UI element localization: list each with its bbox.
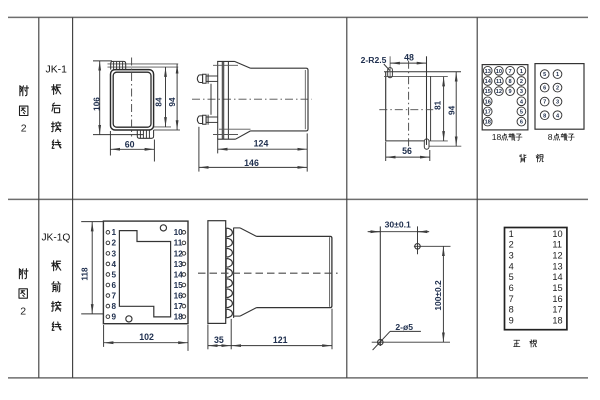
svg-text:16: 16 [552, 294, 562, 304]
svg-text:8: 8 [509, 79, 512, 85]
svg-text:3: 3 [520, 89, 523, 95]
svg-text:9: 9 [509, 316, 514, 326]
svg-text:8: 8 [509, 305, 514, 315]
svg-text:2: 2 [112, 239, 117, 248]
svg-text:2-R2.5: 2-R2.5 [361, 55, 387, 65]
svg-text:5: 5 [520, 110, 523, 116]
svg-text:100±0.2: 100±0.2 [433, 280, 443, 311]
svg-text:84: 84 [154, 97, 163, 107]
svg-text:11: 11 [496, 79, 502, 85]
svg-text:7: 7 [509, 294, 514, 304]
svg-text:94: 94 [168, 97, 177, 107]
svg-text:11: 11 [552, 240, 562, 250]
svg-text:15: 15 [552, 283, 562, 293]
svg-text:6: 6 [112, 281, 117, 290]
svg-text:8: 8 [112, 302, 117, 311]
svg-text:13: 13 [552, 261, 562, 271]
svg-text:3: 3 [509, 251, 514, 261]
svg-text:10: 10 [552, 229, 562, 239]
svg-text:18: 18 [552, 316, 562, 326]
svg-text:18: 18 [485, 120, 491, 126]
svg-text:3: 3 [112, 249, 117, 258]
svg-text:2-ø5: 2-ø5 [395, 322, 413, 332]
svg-text:10: 10 [496, 69, 502, 75]
svg-text:8: 8 [543, 113, 546, 119]
svg-text:17: 17 [552, 305, 562, 315]
svg-text:7: 7 [112, 291, 117, 300]
svg-text:1: 1 [556, 72, 559, 78]
svg-text:14: 14 [485, 79, 492, 85]
svg-text:16: 16 [485, 99, 491, 105]
svg-text:118: 118 [81, 267, 90, 281]
svg-text:1: 1 [112, 228, 117, 237]
svg-text:6: 6 [509, 283, 514, 293]
svg-text:18: 18 [492, 132, 502, 142]
svg-text:14: 14 [552, 272, 562, 282]
svg-text:12: 12 [552, 251, 562, 261]
svg-text:9: 9 [509, 89, 512, 95]
svg-text:4: 4 [509, 261, 514, 271]
svg-text:94: 94 [448, 105, 457, 115]
svg-text:1: 1 [509, 229, 514, 239]
svg-text:6: 6 [520, 120, 523, 126]
svg-text:2: 2 [509, 240, 514, 250]
svg-text:56: 56 [402, 146, 412, 156]
svg-text:15: 15 [485, 89, 491, 95]
svg-text:2: 2 [21, 123, 27, 135]
svg-text:11: 11 [174, 239, 183, 248]
svg-text:8: 8 [548, 132, 553, 142]
svg-text:81: 81 [434, 100, 443, 110]
svg-text:5: 5 [509, 272, 514, 282]
svg-text:5: 5 [112, 270, 117, 279]
svg-text:106: 106 [92, 97, 101, 111]
svg-text:30±0.1: 30±0.1 [385, 219, 411, 229]
svg-text:13: 13 [485, 69, 491, 75]
svg-text:7: 7 [509, 69, 512, 75]
svg-text:7: 7 [543, 100, 546, 106]
svg-text:17: 17 [485, 110, 491, 116]
svg-text:60: 60 [125, 140, 135, 150]
svg-text:124: 124 [254, 139, 269, 149]
svg-text:121: 121 [273, 335, 288, 345]
svg-text:5: 5 [543, 72, 546, 78]
svg-text:2: 2 [520, 79, 523, 85]
svg-text:JK-1: JK-1 [46, 64, 68, 75]
svg-text:146: 146 [244, 158, 259, 168]
svg-text:12: 12 [496, 89, 502, 95]
svg-text:6: 6 [543, 86, 546, 92]
svg-text:9: 9 [112, 313, 117, 322]
svg-text:102: 102 [139, 332, 154, 342]
svg-text:1: 1 [520, 69, 523, 75]
svg-text:JK-1Q: JK-1Q [41, 232, 70, 243]
svg-text:4: 4 [112, 260, 117, 269]
svg-text:2: 2 [20, 306, 26, 318]
svg-text:3: 3 [556, 100, 559, 106]
svg-text:35: 35 [214, 335, 224, 345]
svg-text:2: 2 [556, 86, 559, 92]
